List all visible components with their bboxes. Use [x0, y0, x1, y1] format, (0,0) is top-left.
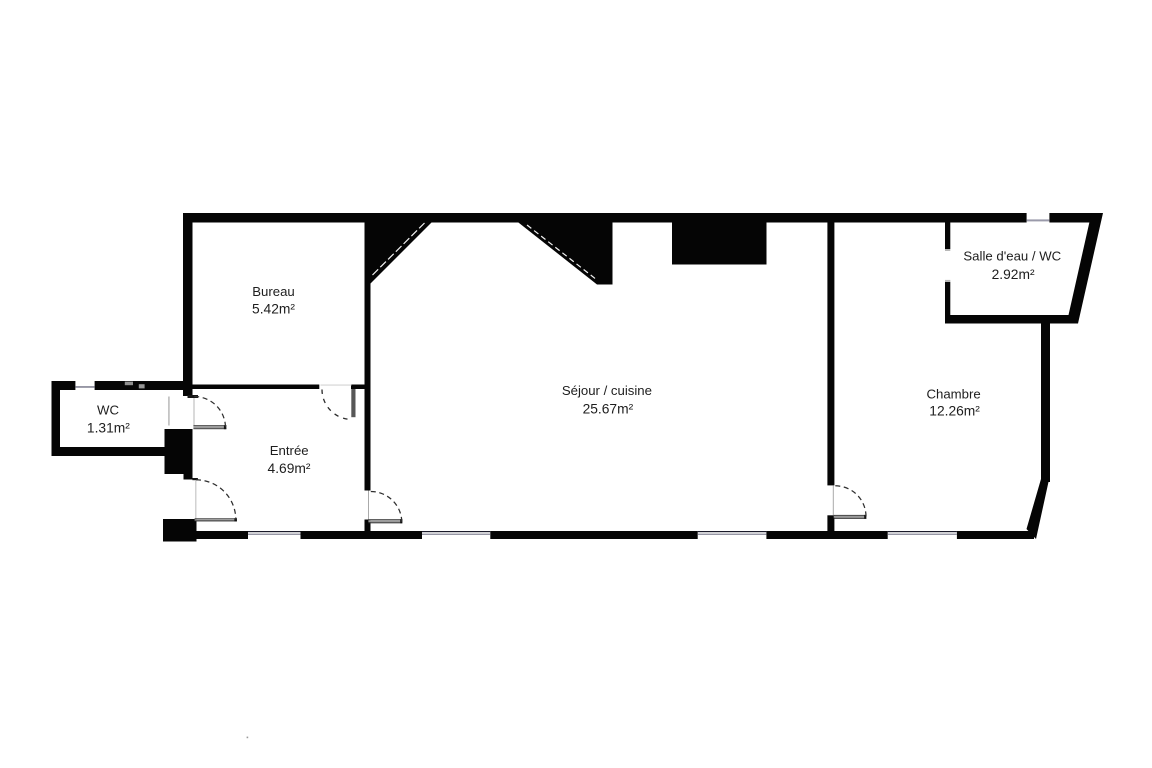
svg-text:5.42m²: 5.42m²	[252, 301, 295, 316]
svg-text:4.69m²: 4.69m²	[268, 461, 311, 476]
svg-text:2.92m²: 2.92m²	[992, 267, 1035, 282]
svg-text:12.26m²: 12.26m²	[929, 404, 980, 419]
svg-text:25.67m²: 25.67m²	[583, 401, 634, 416]
svg-text:1.31m²: 1.31m²	[87, 420, 130, 435]
svg-text:Entrée: Entrée	[270, 443, 309, 458]
svg-text:Bureau: Bureau	[252, 284, 295, 299]
svg-text:Salle d'eau / WC: Salle d'eau / WC	[963, 249, 1061, 264]
svg-text:Chambre: Chambre	[926, 387, 980, 402]
svg-text:Séjour / cuisine: Séjour / cuisine	[562, 383, 652, 398]
svg-text:WC: WC	[97, 403, 119, 418]
